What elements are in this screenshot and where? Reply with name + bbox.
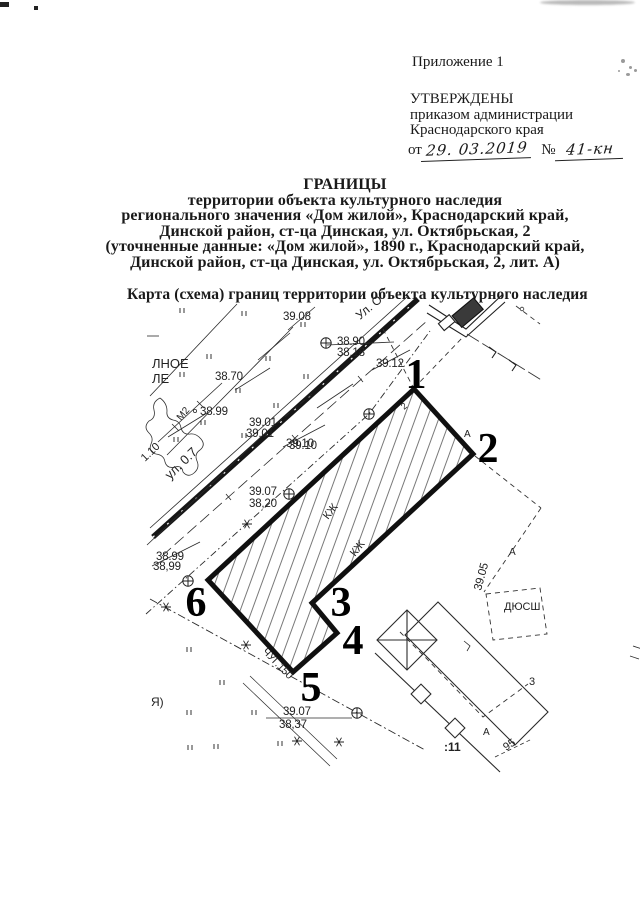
street-name-label: Ул. О bbox=[353, 292, 385, 322]
map-note-label: М2 bbox=[175, 405, 193, 423]
elevation-label: 38,37 bbox=[279, 719, 307, 731]
elevation-label: 38.70 bbox=[215, 371, 243, 383]
elevation-label: 38,20 bbox=[249, 498, 277, 510]
road-width-label: ул. 0.7 bbox=[162, 444, 201, 482]
road-width-label: 1.10 bbox=[139, 441, 163, 465]
cadastral-number-label: :11 bbox=[444, 740, 461, 754]
elevation-label: 39.08 bbox=[283, 311, 311, 323]
cadastral-number-label: 3 bbox=[529, 676, 535, 688]
map-schema: 39.08 38.90 38,18 38.70 38.99 39.01 39,0… bbox=[0, 0, 640, 905]
elevation-label: 39.05 bbox=[472, 562, 491, 592]
elevation-label: 39.10 bbox=[289, 440, 317, 452]
elevation-label: 38.99 bbox=[200, 406, 228, 418]
vertex-number-5: 5 bbox=[301, 665, 322, 711]
map-note-label: Я) bbox=[151, 695, 164, 709]
vertex-number-1: 1 bbox=[406, 352, 427, 398]
benchmark-icon bbox=[364, 409, 374, 419]
benchmark-icon bbox=[284, 489, 294, 499]
elevation-label: 39.12 bbox=[376, 358, 404, 370]
elevation-label: 38,18 bbox=[337, 347, 365, 359]
gate-structure bbox=[427, 294, 516, 371]
benchmark-icon bbox=[321, 338, 331, 348]
area-name-label: ЛНОЕ bbox=[152, 356, 189, 371]
elevation-label: 39.07 bbox=[249, 486, 277, 498]
cadastral-number-label: 95 bbox=[501, 737, 518, 754]
vertex-number-4: 4 bbox=[343, 618, 364, 664]
elevation-label: 38,99 bbox=[153, 561, 181, 573]
elevation-label: 39,01 bbox=[246, 428, 274, 440]
liter-label: А bbox=[509, 547, 516, 558]
benchmark-icon bbox=[352, 708, 362, 718]
scanned-document-page: Приложение 1 УТВЕРЖДЕНЫ приказом админис… bbox=[0, 0, 640, 905]
sports-school-label: ДЮСШ bbox=[504, 601, 540, 613]
liter-label: А bbox=[464, 429, 471, 440]
vertex-number-2: 2 bbox=[478, 426, 499, 472]
liter-label: А bbox=[483, 727, 490, 738]
area-name-label: ЛЕ bbox=[152, 371, 170, 386]
vertex-number-6: 6 bbox=[186, 580, 207, 626]
